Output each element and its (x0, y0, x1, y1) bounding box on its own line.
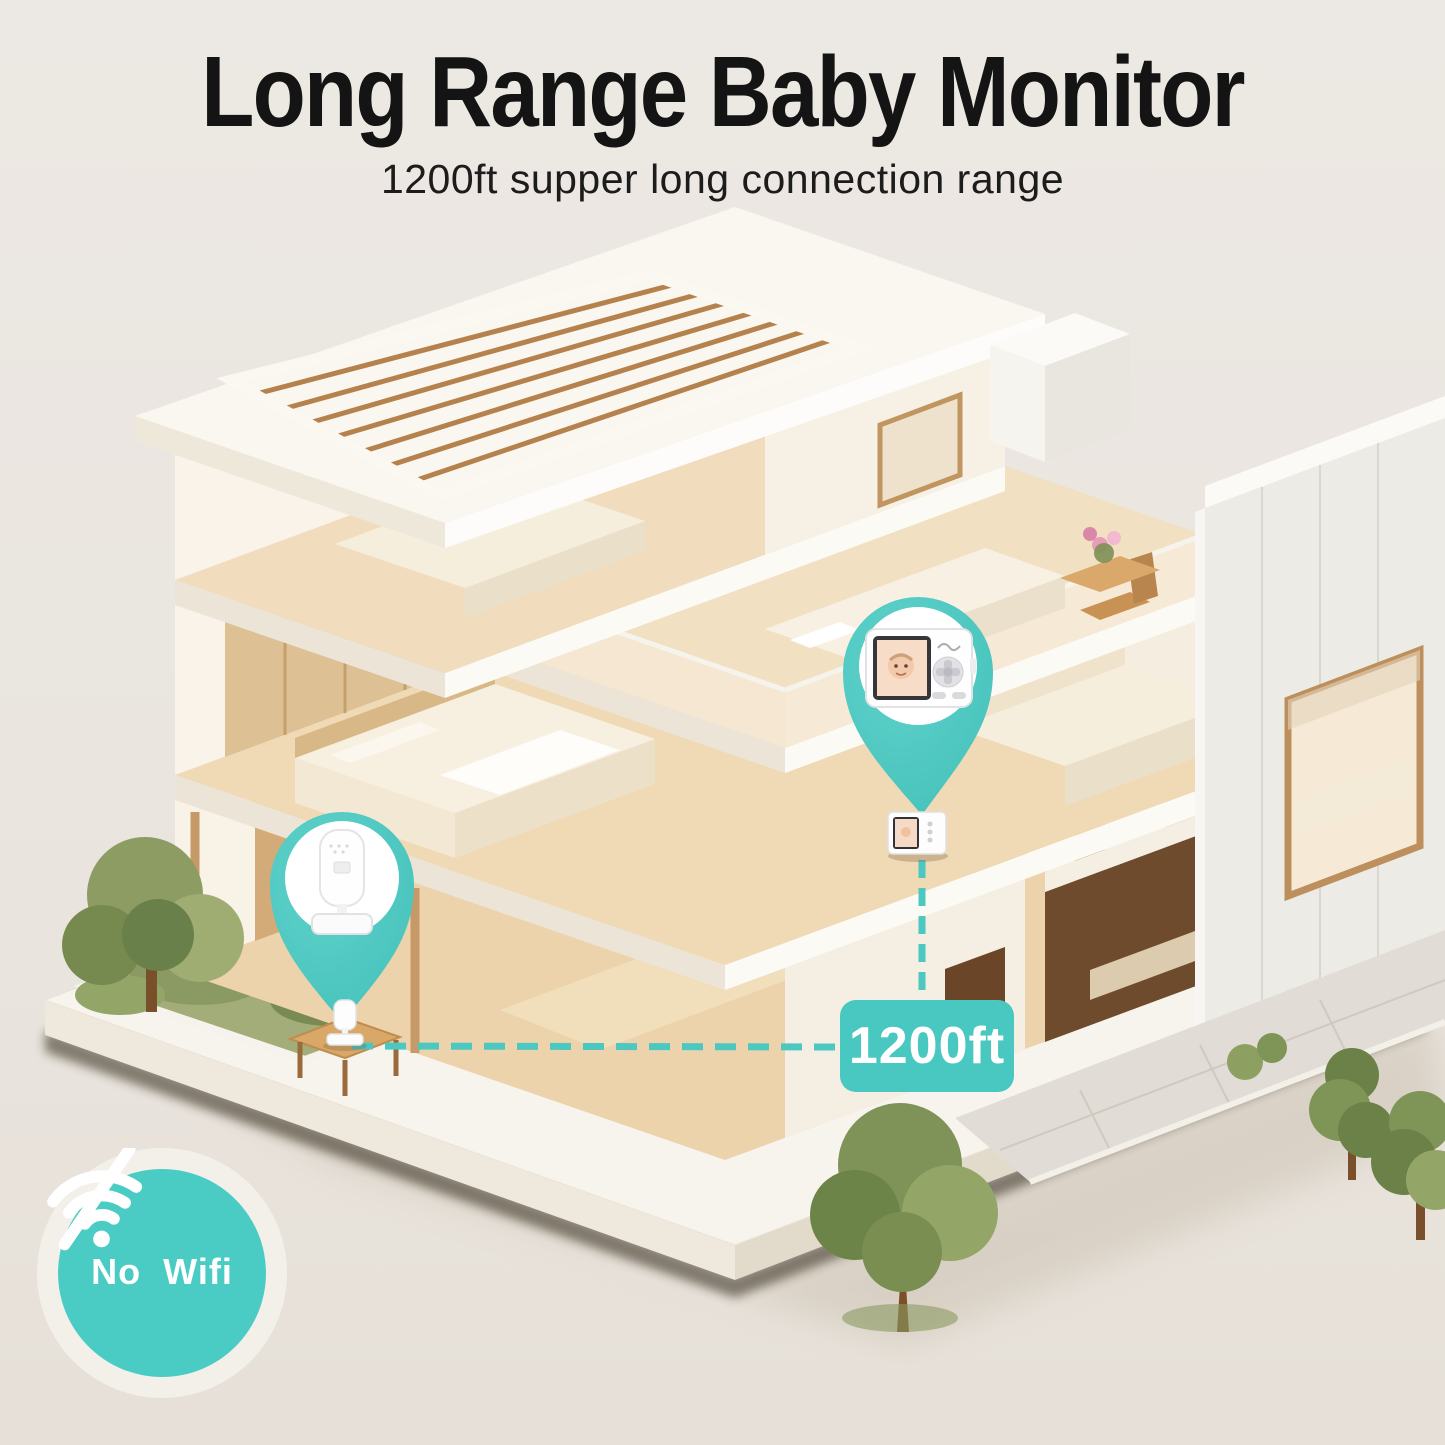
no-wifi-label: No Wifi (91, 1251, 233, 1293)
range-distance-badge: 1200ft (840, 1000, 1014, 1092)
dashed-range-line-horizontal (352, 1046, 842, 1047)
page-title: Long Range Baby Monitor (94, 40, 1351, 145)
range-distance-label: 1200ft (849, 1016, 1005, 1076)
monitor-on-table-icon (888, 812, 948, 862)
baby-camera-icon (312, 830, 372, 934)
wifi-off-icon (37, 1148, 155, 1256)
no-wifi-badge: No Wifi (37, 1148, 287, 1398)
no-wifi-badge-circle: No Wifi (58, 1169, 266, 1377)
baby-monitor-icon (866, 629, 976, 707)
promo-image: Long Range Baby Monitor 1200ft supper lo… (0, 0, 1445, 1445)
page-subtitle: 1200ft supper long connection range (0, 156, 1445, 203)
